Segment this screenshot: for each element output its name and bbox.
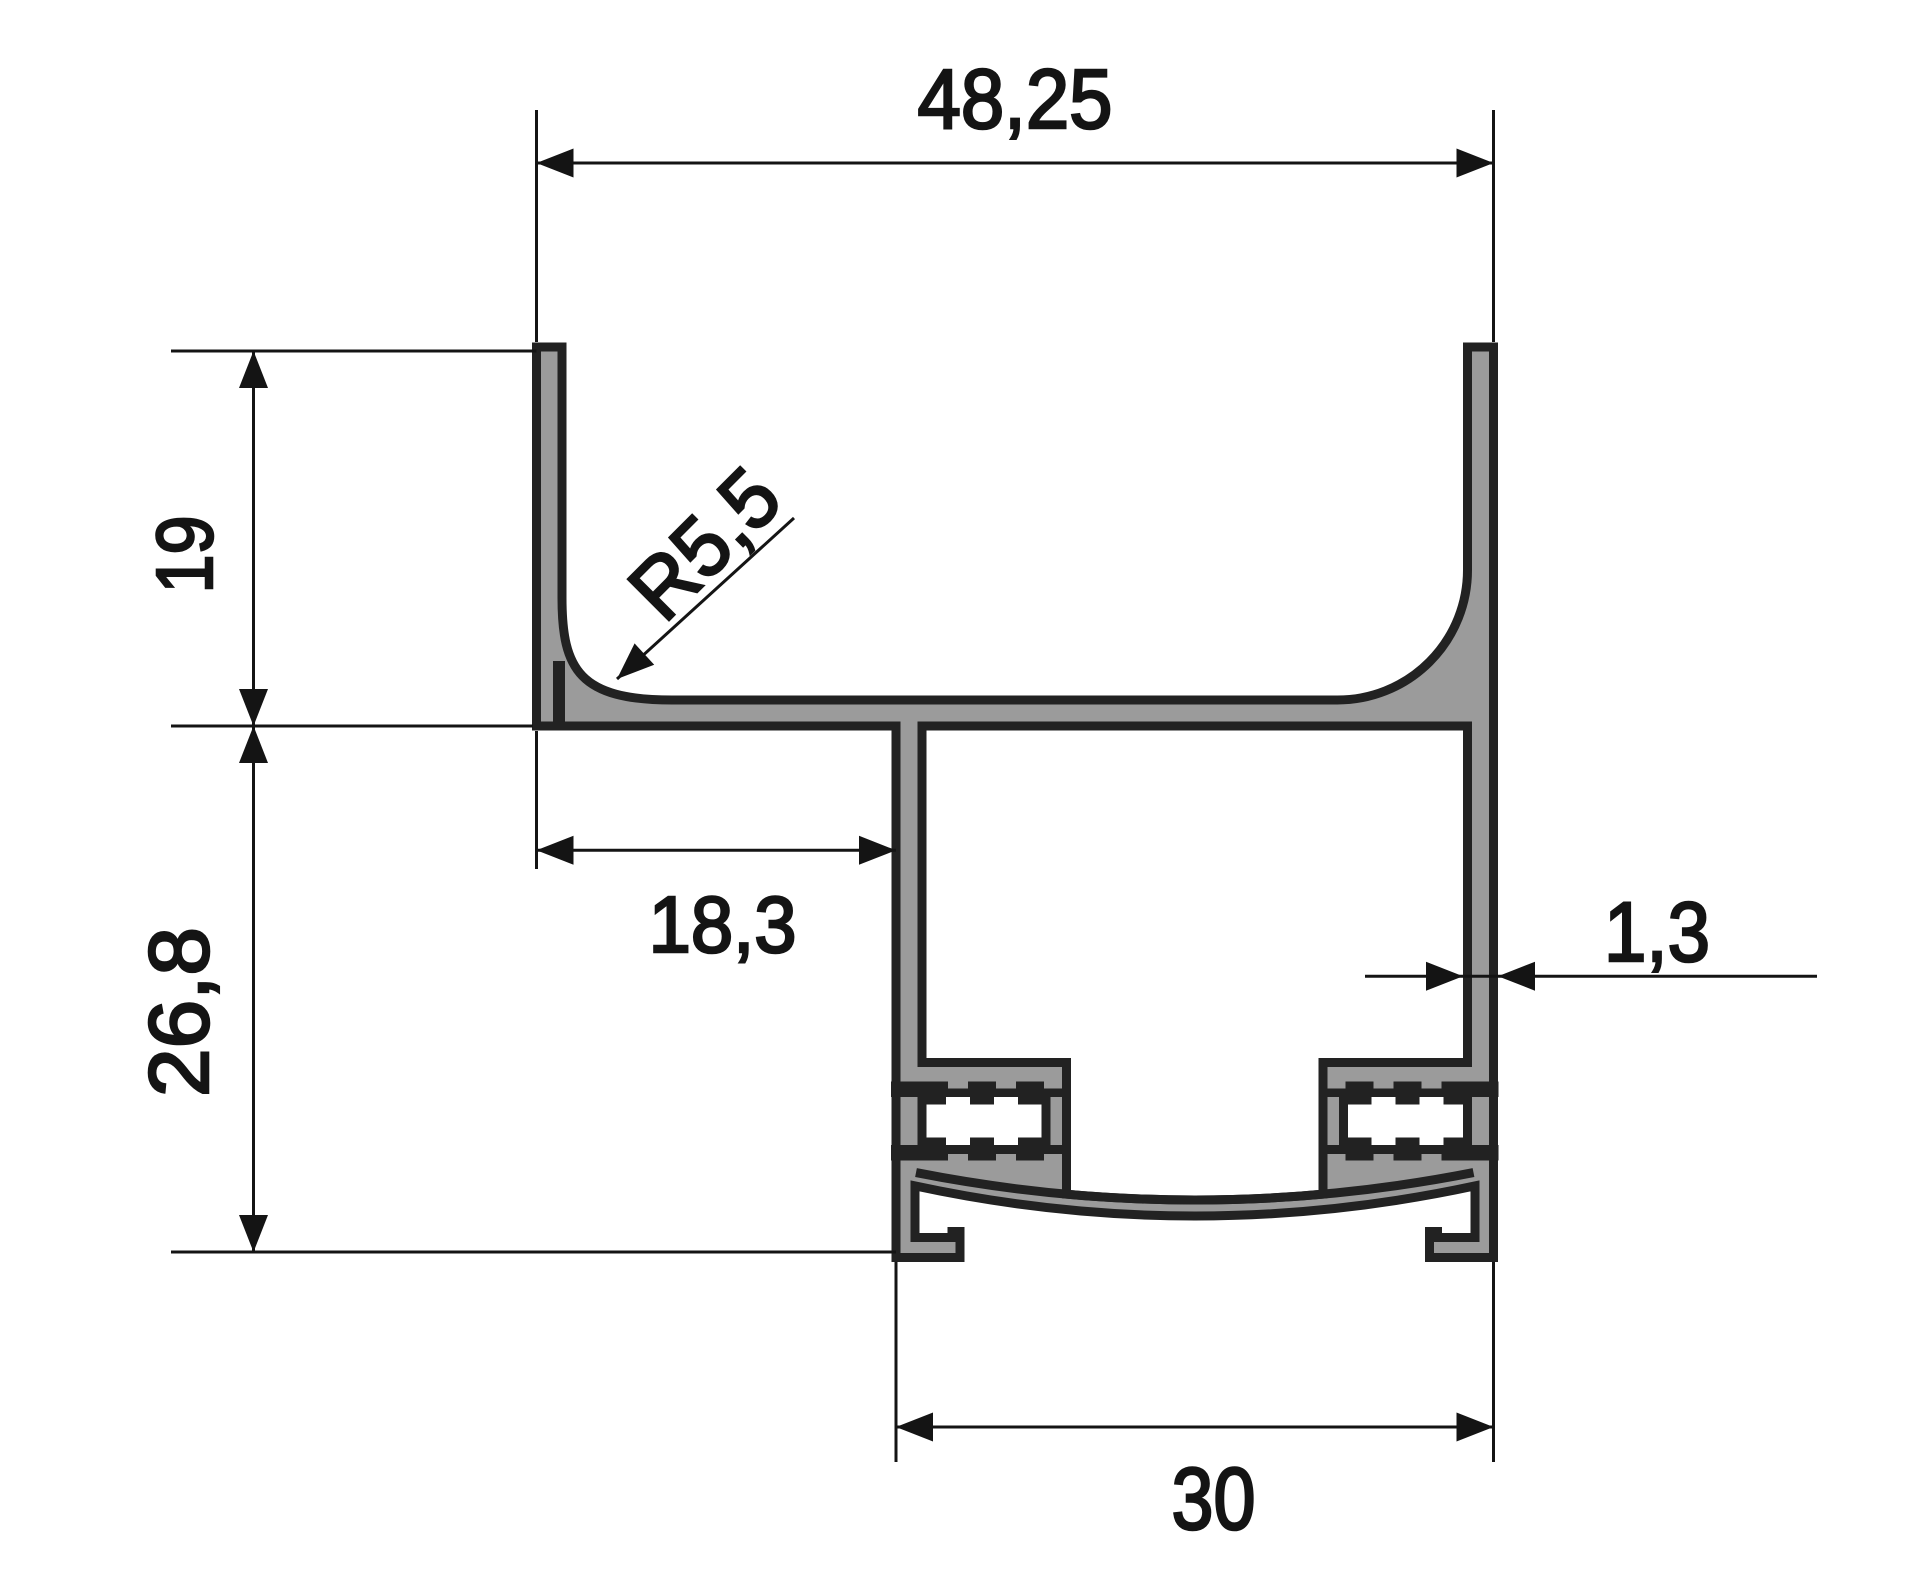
svg-text:1,3: 1,3 (1604, 885, 1710, 979)
svg-text:48,25: 48,25 (918, 52, 1113, 146)
svg-text:26,8: 26,8 (132, 927, 226, 1097)
svg-text:18,3: 18,3 (649, 880, 797, 969)
svg-text:19: 19 (140, 516, 229, 594)
svg-text:30: 30 (1172, 1449, 1256, 1548)
